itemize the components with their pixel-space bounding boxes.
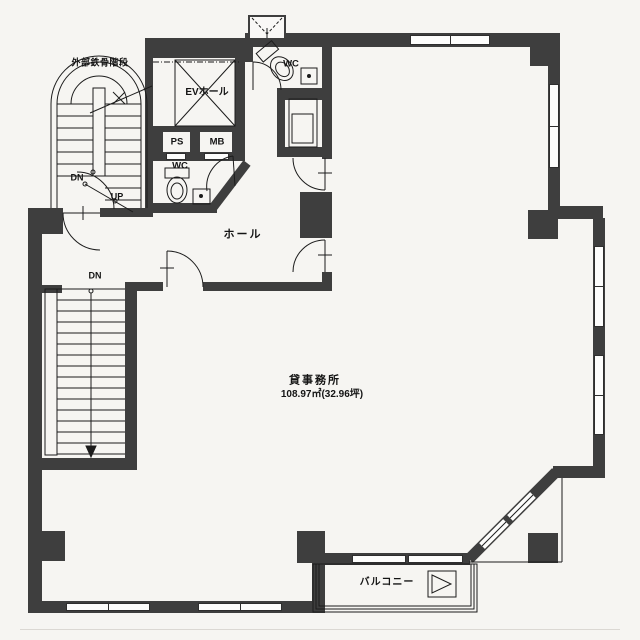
external-stair-icon [51, 56, 152, 212]
wc-upper-label: WC [283, 59, 299, 69]
wc-lower-label: WC [172, 161, 188, 171]
diagonal-wall [469, 472, 556, 559]
mb-label: MB [210, 137, 225, 147]
washbasin-icon [301, 68, 317, 84]
external-stair-up-label: UP [111, 193, 124, 202]
hall-label: ホール [224, 230, 263, 241]
balcony-label: バルコニー [360, 578, 415, 588]
office-area-label: 108.97㎡(32.96坪) [281, 390, 363, 400]
ev-hall-label: EVホール [185, 88, 228, 98]
kitchenette-counter [289, 99, 317, 147]
scan-artifact [20, 629, 620, 630]
evacuation-hatch-icon [428, 571, 456, 597]
external-stair-label: 外部鉄骨階段 [71, 59, 128, 68]
office-name-label: 貸事務所 [289, 376, 341, 387]
internal-stair-icon [45, 289, 125, 457]
core-diagonal-wall [212, 163, 247, 209]
internal-stair-dn-label: DN [89, 272, 102, 281]
plan-linework [0, 0, 640, 640]
external-stair-dn-label: DN [71, 174, 84, 183]
washbasin-icon [193, 189, 210, 204]
ps-label: PS [171, 137, 184, 147]
toilet-icon [165, 168, 189, 203]
floor-plan: 外部鉄骨階段 EVホール PS MB WC WC ホール DN UP DN 貸事… [0, 0, 640, 640]
